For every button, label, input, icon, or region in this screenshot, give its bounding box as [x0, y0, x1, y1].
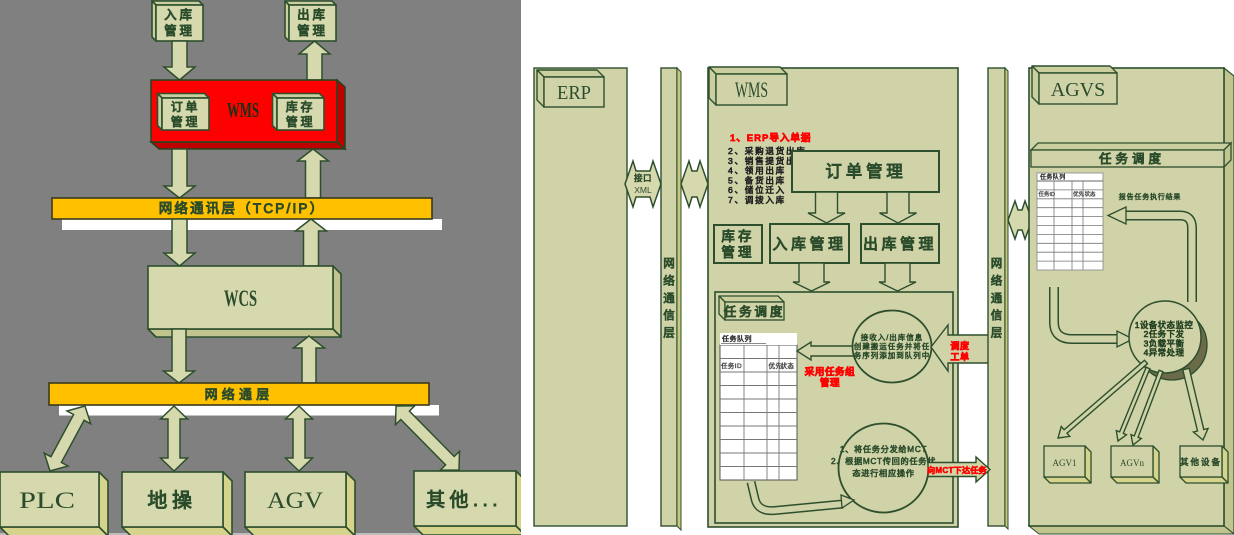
- svg-text:优先: 优先: [1073, 190, 1085, 198]
- svg-text:工单: 工单: [950, 351, 969, 362]
- svg-text:地操: 地操: [147, 489, 196, 512]
- svg-text:任务调度: 任务调度: [1099, 151, 1165, 166]
- svg-text:通: 通: [663, 292, 675, 305]
- svg-text:态进行相应操作: 态进行相应操作: [852, 468, 914, 478]
- svg-text:AGV: AGV: [267, 488, 323, 513]
- svg-text:AGV1: AGV1: [1053, 458, 1077, 468]
- svg-text:1、ERP导入单据: 1、ERP导入单据: [730, 132, 811, 144]
- svg-text:务序列添加到队列中: 务序列添加到队列中: [854, 350, 931, 360]
- svg-text:管理: 管理: [721, 245, 754, 260]
- svg-text:信: 信: [991, 309, 1003, 322]
- svg-text:PLC: PLC: [19, 488, 75, 513]
- svg-text:6、储位迁入: 6、储位迁入: [728, 184, 786, 195]
- svg-text:管理: 管理: [164, 23, 195, 38]
- svg-text:4、领用出库: 4、领用出库: [728, 165, 786, 176]
- svg-text:1、将任务分发给MCT: 1、将任务分发给MCT: [840, 444, 927, 454]
- svg-text:订单: 订单: [171, 100, 201, 114]
- svg-text:接收入/出库信息: 接收入/出库信息: [861, 332, 924, 342]
- svg-text:通: 通: [991, 292, 1003, 305]
- svg-text:WMS: WMS: [735, 77, 768, 102]
- svg-text:状态: 状态: [781, 361, 795, 370]
- svg-text:调度: 调度: [950, 340, 970, 351]
- svg-text:采用任务组: 采用任务组: [804, 366, 856, 378]
- svg-text:网络通讯层（TCP/IP）: 网络通讯层（TCP/IP）: [159, 201, 326, 216]
- svg-text:管理: 管理: [297, 23, 328, 38]
- svg-text:出库: 出库: [297, 7, 328, 22]
- svg-text:入库管理: 入库管理: [772, 236, 846, 253]
- svg-text:XML: XML: [634, 185, 652, 195]
- svg-text:任务ID: 任务ID: [721, 361, 742, 370]
- svg-text:报告任务执行结果: 报告任务执行结果: [1119, 192, 1181, 201]
- svg-text:其他...: 其他...: [426, 489, 502, 511]
- svg-text:网络通层: 网络通层: [205, 387, 274, 402]
- svg-text:层: 层: [991, 327, 1003, 340]
- svg-text:WCS: WCS: [224, 286, 257, 311]
- svg-text:状态: 状态: [1085, 190, 1097, 198]
- svg-text:5、备货出库: 5、备货出库: [728, 174, 786, 185]
- svg-text:层: 层: [663, 327, 675, 340]
- svg-text:接口: 接口: [634, 173, 652, 183]
- svg-text:信: 信: [663, 309, 675, 322]
- svg-text:网: 网: [663, 258, 675, 270]
- svg-text:其他设备: 其他设备: [1180, 457, 1222, 467]
- svg-text:任务调度: 任务调度: [724, 304, 786, 319]
- svg-text:入库: 入库: [164, 7, 195, 22]
- svg-text:出库管理: 出库管理: [863, 236, 937, 253]
- svg-text:管理: 管理: [820, 377, 840, 389]
- svg-text:库存: 库存: [286, 99, 316, 114]
- svg-text:ERP: ERP: [557, 82, 591, 104]
- svg-text:2、根据MCT传回的任务状: 2、根据MCT传回的任务状: [831, 456, 936, 466]
- svg-text:任务ID: 任务ID: [1039, 190, 1056, 198]
- svg-text:7、调拨入库: 7、调拨入库: [728, 194, 786, 205]
- svg-text:络: 络: [991, 273, 1003, 287]
- svg-text:任务队列: 任务队列: [1040, 173, 1066, 181]
- svg-text:管理: 管理: [286, 114, 316, 129]
- svg-text:订单管理: 订单管理: [825, 162, 906, 181]
- svg-text:AGVS: AGVS: [1051, 79, 1105, 101]
- svg-text:络: 络: [663, 273, 675, 287]
- svg-text:网: 网: [991, 258, 1003, 270]
- svg-text:向MCT下达任务: 向MCT下达任务: [927, 465, 987, 475]
- svg-text:创建搬运任务并将任: 创建搬运任务并将任: [854, 341, 931, 351]
- svg-text:WMS: WMS: [227, 98, 259, 122]
- svg-text:库存: 库存: [721, 229, 754, 244]
- svg-text:AGVn: AGVn: [1120, 458, 1144, 468]
- svg-text:任务队列: 任务队列: [722, 334, 752, 343]
- svg-text:管理: 管理: [171, 114, 201, 129]
- svg-text:4异常处理: 4异常处理: [1144, 348, 1185, 358]
